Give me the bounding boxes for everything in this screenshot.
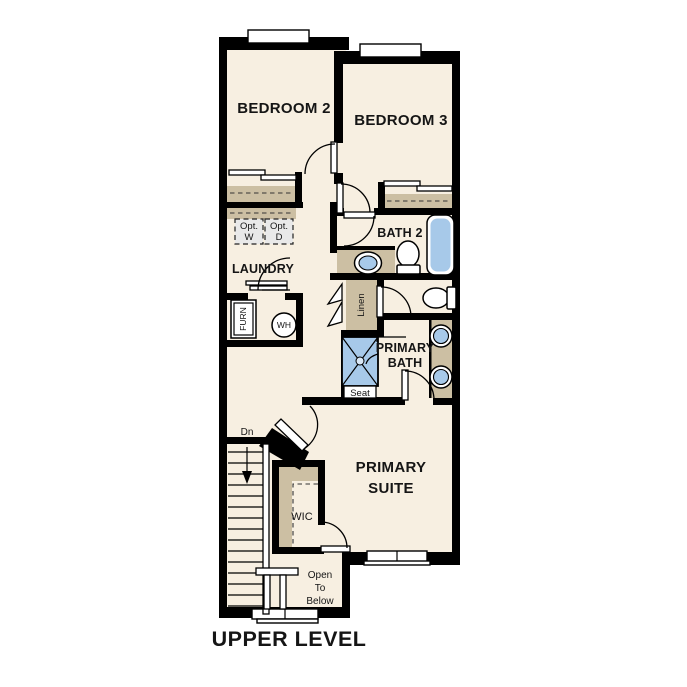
water-heater-label: WH	[277, 320, 291, 330]
open-below-label-line1: Open	[308, 570, 332, 581]
wall-furn-bottom	[219, 340, 303, 347]
opt-washer-label-line2: W	[245, 232, 254, 243]
primary-bath-label-line2: BATH	[388, 356, 423, 370]
open-below-railing-right	[280, 575, 286, 609]
opt-dryer-label-line1: Opt.	[270, 221, 288, 232]
bedroom3-closet-bypass-door-1	[384, 181, 420, 186]
furnace-label: FURN	[238, 307, 248, 331]
wall-open-below-right	[342, 552, 350, 614]
bath2-door-leaf	[344, 212, 375, 218]
open-below-window-sill	[257, 619, 318, 623]
wic-shelf-left	[279, 467, 292, 547]
primary-bath-label-line1: PRIMARY	[376, 341, 435, 355]
primary-suite-label-line1: PRIMARY	[356, 459, 427, 476]
floorplan-page: { "title": "UPPER LEVEL", "rooms": { "be…	[0, 0, 687, 687]
wall-laundry-hall	[330, 202, 337, 253]
primary-sink1-basin	[434, 329, 449, 344]
bedroom2-window	[248, 30, 309, 43]
opt-washer-label-line1: Opt.	[240, 221, 258, 232]
primary-suite-window-sill	[364, 561, 430, 565]
wic-door-leaf	[321, 546, 350, 552]
bedroom3-label: BEDROOM 3	[354, 112, 448, 129]
toilet-room-door-leaf	[377, 286, 383, 317]
primary-sink2-basin	[434, 370, 449, 385]
wall-below-linen	[341, 330, 384, 337]
bedroom2-closet-bypass-door-2	[261, 175, 296, 180]
wall-wic-top	[272, 460, 325, 467]
bath2-sink-basin	[359, 256, 377, 270]
bath2-toilet-tank	[397, 265, 420, 274]
bedroom3-door-leaf	[337, 183, 343, 213]
bedroom2-door-leaf	[331, 142, 337, 173]
wall-primarybath-bottom-right	[433, 398, 460, 405]
furnace-closet-bypass-door-1	[246, 281, 287, 285]
laundry-label: LAUNDRY	[232, 262, 295, 276]
wall-furn-right	[296, 293, 303, 347]
wall-bedroom-divider	[334, 51, 343, 143]
primary-suite-label-line2: SUITE	[368, 480, 414, 497]
bath2-toilet-bowl	[397, 241, 419, 267]
open-below-label-line3: Below	[306, 596, 334, 607]
wall-wc-bottom	[383, 313, 460, 320]
wall-stairs-top	[219, 437, 267, 444]
primary-shower	[342, 337, 378, 386]
floorplan-drawing: BEDROOM 2 BEDROOM 3 BATH 2 LAUNDRY PRIMA…	[0, 0, 687, 687]
plan-title: UPPER LEVEL	[212, 627, 367, 651]
primary-toilet-bowl	[423, 288, 449, 308]
wall-below-bed2closet	[219, 202, 303, 208]
bedroom2-label: BEDROOM 2	[237, 100, 331, 117]
bath2-label: BATH 2	[377, 226, 422, 240]
wall-wic-right	[318, 460, 325, 525]
primary-toilet-tank	[447, 287, 456, 309]
stairs-down-label: Dn	[241, 427, 254, 438]
bedroom2-closet-shelf	[227, 186, 297, 202]
wall-below-bed3closet	[378, 208, 460, 215]
open-below-railing-left	[264, 575, 270, 609]
wic-label: WIC	[291, 511, 312, 523]
shower-drain	[356, 357, 364, 365]
laundry-shelf	[227, 208, 296, 219]
bedroom3-closet-bypass-door-2	[417, 186, 452, 191]
open-below-railing-top	[256, 568, 298, 575]
wall-wic-left	[272, 460, 279, 554]
linen-label: Linen	[356, 293, 367, 316]
primary-bath-door-leaf	[402, 370, 408, 400]
shower-seat-label: Seat	[350, 388, 370, 399]
wall-left-exterior	[219, 37, 227, 618]
bath2-tub-basin	[431, 219, 451, 272]
wall-wic-bottom	[272, 547, 324, 554]
wall-furn-top-left	[227, 293, 248, 300]
open-below-label-line2: To	[315, 583, 326, 594]
bedroom3-window	[360, 44, 421, 57]
opt-dryer-label-line2: D	[276, 232, 283, 243]
bedroom2-closet-bypass-door-1	[229, 170, 265, 175]
